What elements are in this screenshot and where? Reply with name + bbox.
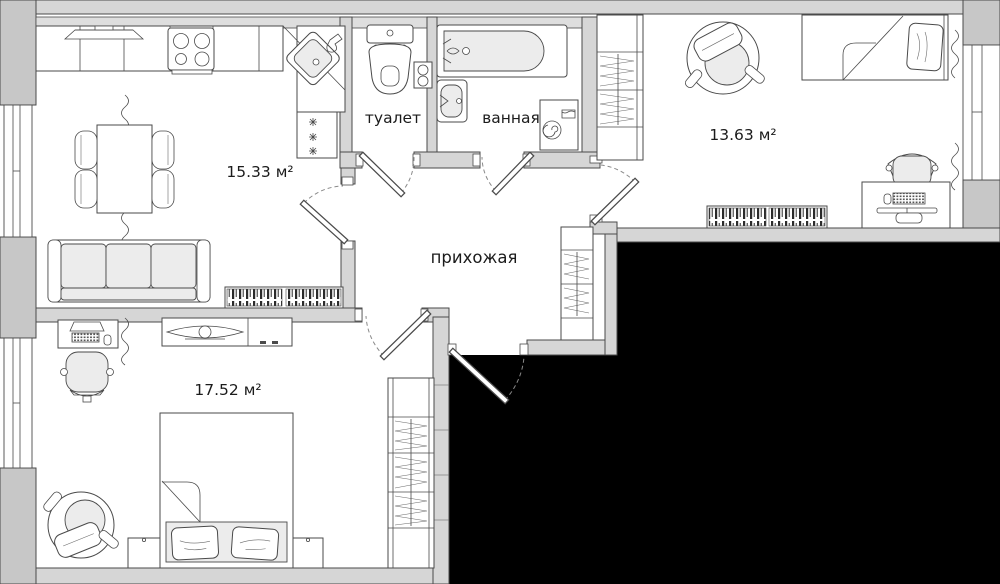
fridge xyxy=(297,112,337,158)
room-label-kitchen-living: 15.33 м² xyxy=(226,163,293,181)
bookshelf xyxy=(225,287,343,308)
room-label-bathroom: ванная xyxy=(482,109,540,127)
floor-plan-page: 15.33 м² туалет ванная 13.63 м² прихожая… xyxy=(0,0,1000,584)
desk xyxy=(862,182,950,228)
window-left-2 xyxy=(4,338,32,468)
single-bed xyxy=(802,15,948,80)
room-label-toilet: туалет xyxy=(365,109,421,127)
hallway xyxy=(561,227,593,340)
room-label-bedroom: 13.63 м² xyxy=(709,126,776,144)
floor-plan-svg: 15.33 м² туалет ванная 13.63 м² прихожая… xyxy=(0,0,1000,584)
toilet-bowl xyxy=(367,25,413,94)
room-label-hallway: прихожая xyxy=(431,248,518,267)
bathtub xyxy=(437,25,567,77)
room-label-bedroom-2: 17.52 м² xyxy=(194,381,261,399)
wardrobe xyxy=(597,15,643,160)
tv-console xyxy=(162,318,292,346)
water-heater xyxy=(414,62,432,88)
wardrobe xyxy=(388,378,434,568)
nightstand xyxy=(128,538,160,568)
dining-table xyxy=(75,125,174,213)
bookshelf xyxy=(707,206,827,228)
double-bed xyxy=(160,413,293,568)
washing-machine xyxy=(540,100,578,150)
hallway-wardrobe xyxy=(561,227,593,340)
bathroom-sink xyxy=(437,80,467,122)
sofa xyxy=(48,240,210,302)
nightstand xyxy=(293,538,323,568)
desk xyxy=(58,320,118,348)
window-right xyxy=(963,45,1000,180)
cooktop xyxy=(168,28,214,74)
window-left-1 xyxy=(4,105,32,237)
